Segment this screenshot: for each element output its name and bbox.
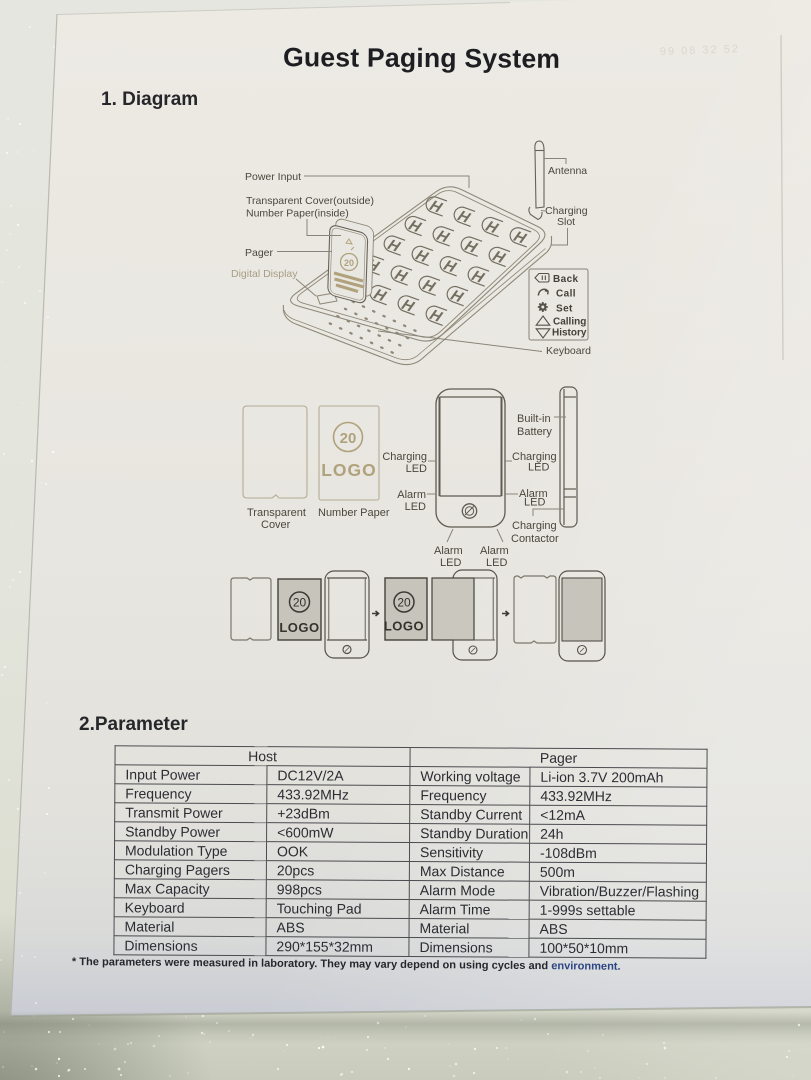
svg-text:Digital Display: Digital Display [231,268,298,280]
svg-text:LED: LED [528,462,549,474]
svg-text:LOGO: LOGO [279,620,319,635]
svg-text:LED: LED [440,557,461,569]
svg-text:H: H [384,237,404,255]
svg-text:Back: Back [553,274,579,285]
svg-text:Battery: Battery [517,426,552,438]
svg-text:Antenna: Antenna [548,165,587,177]
svg-text:H: H [391,267,411,285]
svg-text:H: H [426,307,446,325]
svg-text:Charging: Charging [512,520,557,532]
svg-text:H: H [461,238,481,256]
svg-text:Slot: Slot [557,216,575,228]
svg-text:H: H [405,218,425,236]
svg-text:20: 20 [340,430,357,447]
svg-text:Power Input: Power Input [245,171,301,183]
svg-text:Calling: Calling [553,317,586,328]
svg-text:Number Paper: Number Paper [318,507,390,519]
svg-text:Built-in: Built-in [517,413,551,425]
svg-text:H: H [489,249,509,267]
svg-text:H: H [468,268,488,286]
svg-text:H: H [419,278,439,296]
svg-text:Alarm: Alarm [397,489,426,501]
svg-text:Transparent: Transparent [247,507,306,519]
svg-text:Contactor: Contactor [511,533,559,545]
svg-text:Transparent Cover(outside): Transparent Cover(outside) [246,195,374,207]
svg-text:20: 20 [293,596,307,610]
svg-text:H: H [454,208,474,226]
svg-text:Cover: Cover [261,519,291,531]
svg-text:H: H [447,288,467,306]
svg-text:Keyboard: Keyboard [546,345,591,357]
svg-text:Pager: Pager [245,247,274,259]
svg-text:Alarm: Alarm [434,545,463,557]
svg-text:20: 20 [397,596,411,610]
svg-text:H: H [440,258,460,276]
svg-text:H: H [398,297,418,315]
svg-text:LED: LED [524,497,545,509]
svg-text:H: H [433,228,453,246]
svg-text:LOGO: LOGO [321,460,377,480]
svg-text:LOGO: LOGO [384,619,424,634]
svg-text:History: History [552,328,587,339]
svg-text:H: H [510,229,530,247]
svg-text:LED: LED [406,463,427,475]
svg-text:Charging: Charging [382,451,427,463]
svg-text:99 08 32 52: 99 08 32 52 [660,43,740,58]
svg-text:H: H [412,248,432,266]
svg-text:LED: LED [486,557,507,569]
svg-text:Number Paper(inside): Number Paper(inside) [246,208,349,220]
svg-text:H: H [482,219,502,237]
svg-text:H: H [370,287,390,305]
svg-text:LED: LED [405,501,426,513]
svg-text:Set: Set [556,304,573,315]
svg-text:20: 20 [344,258,354,268]
svg-text:Alarm: Alarm [480,545,509,557]
svg-text:Call: Call [556,289,576,300]
